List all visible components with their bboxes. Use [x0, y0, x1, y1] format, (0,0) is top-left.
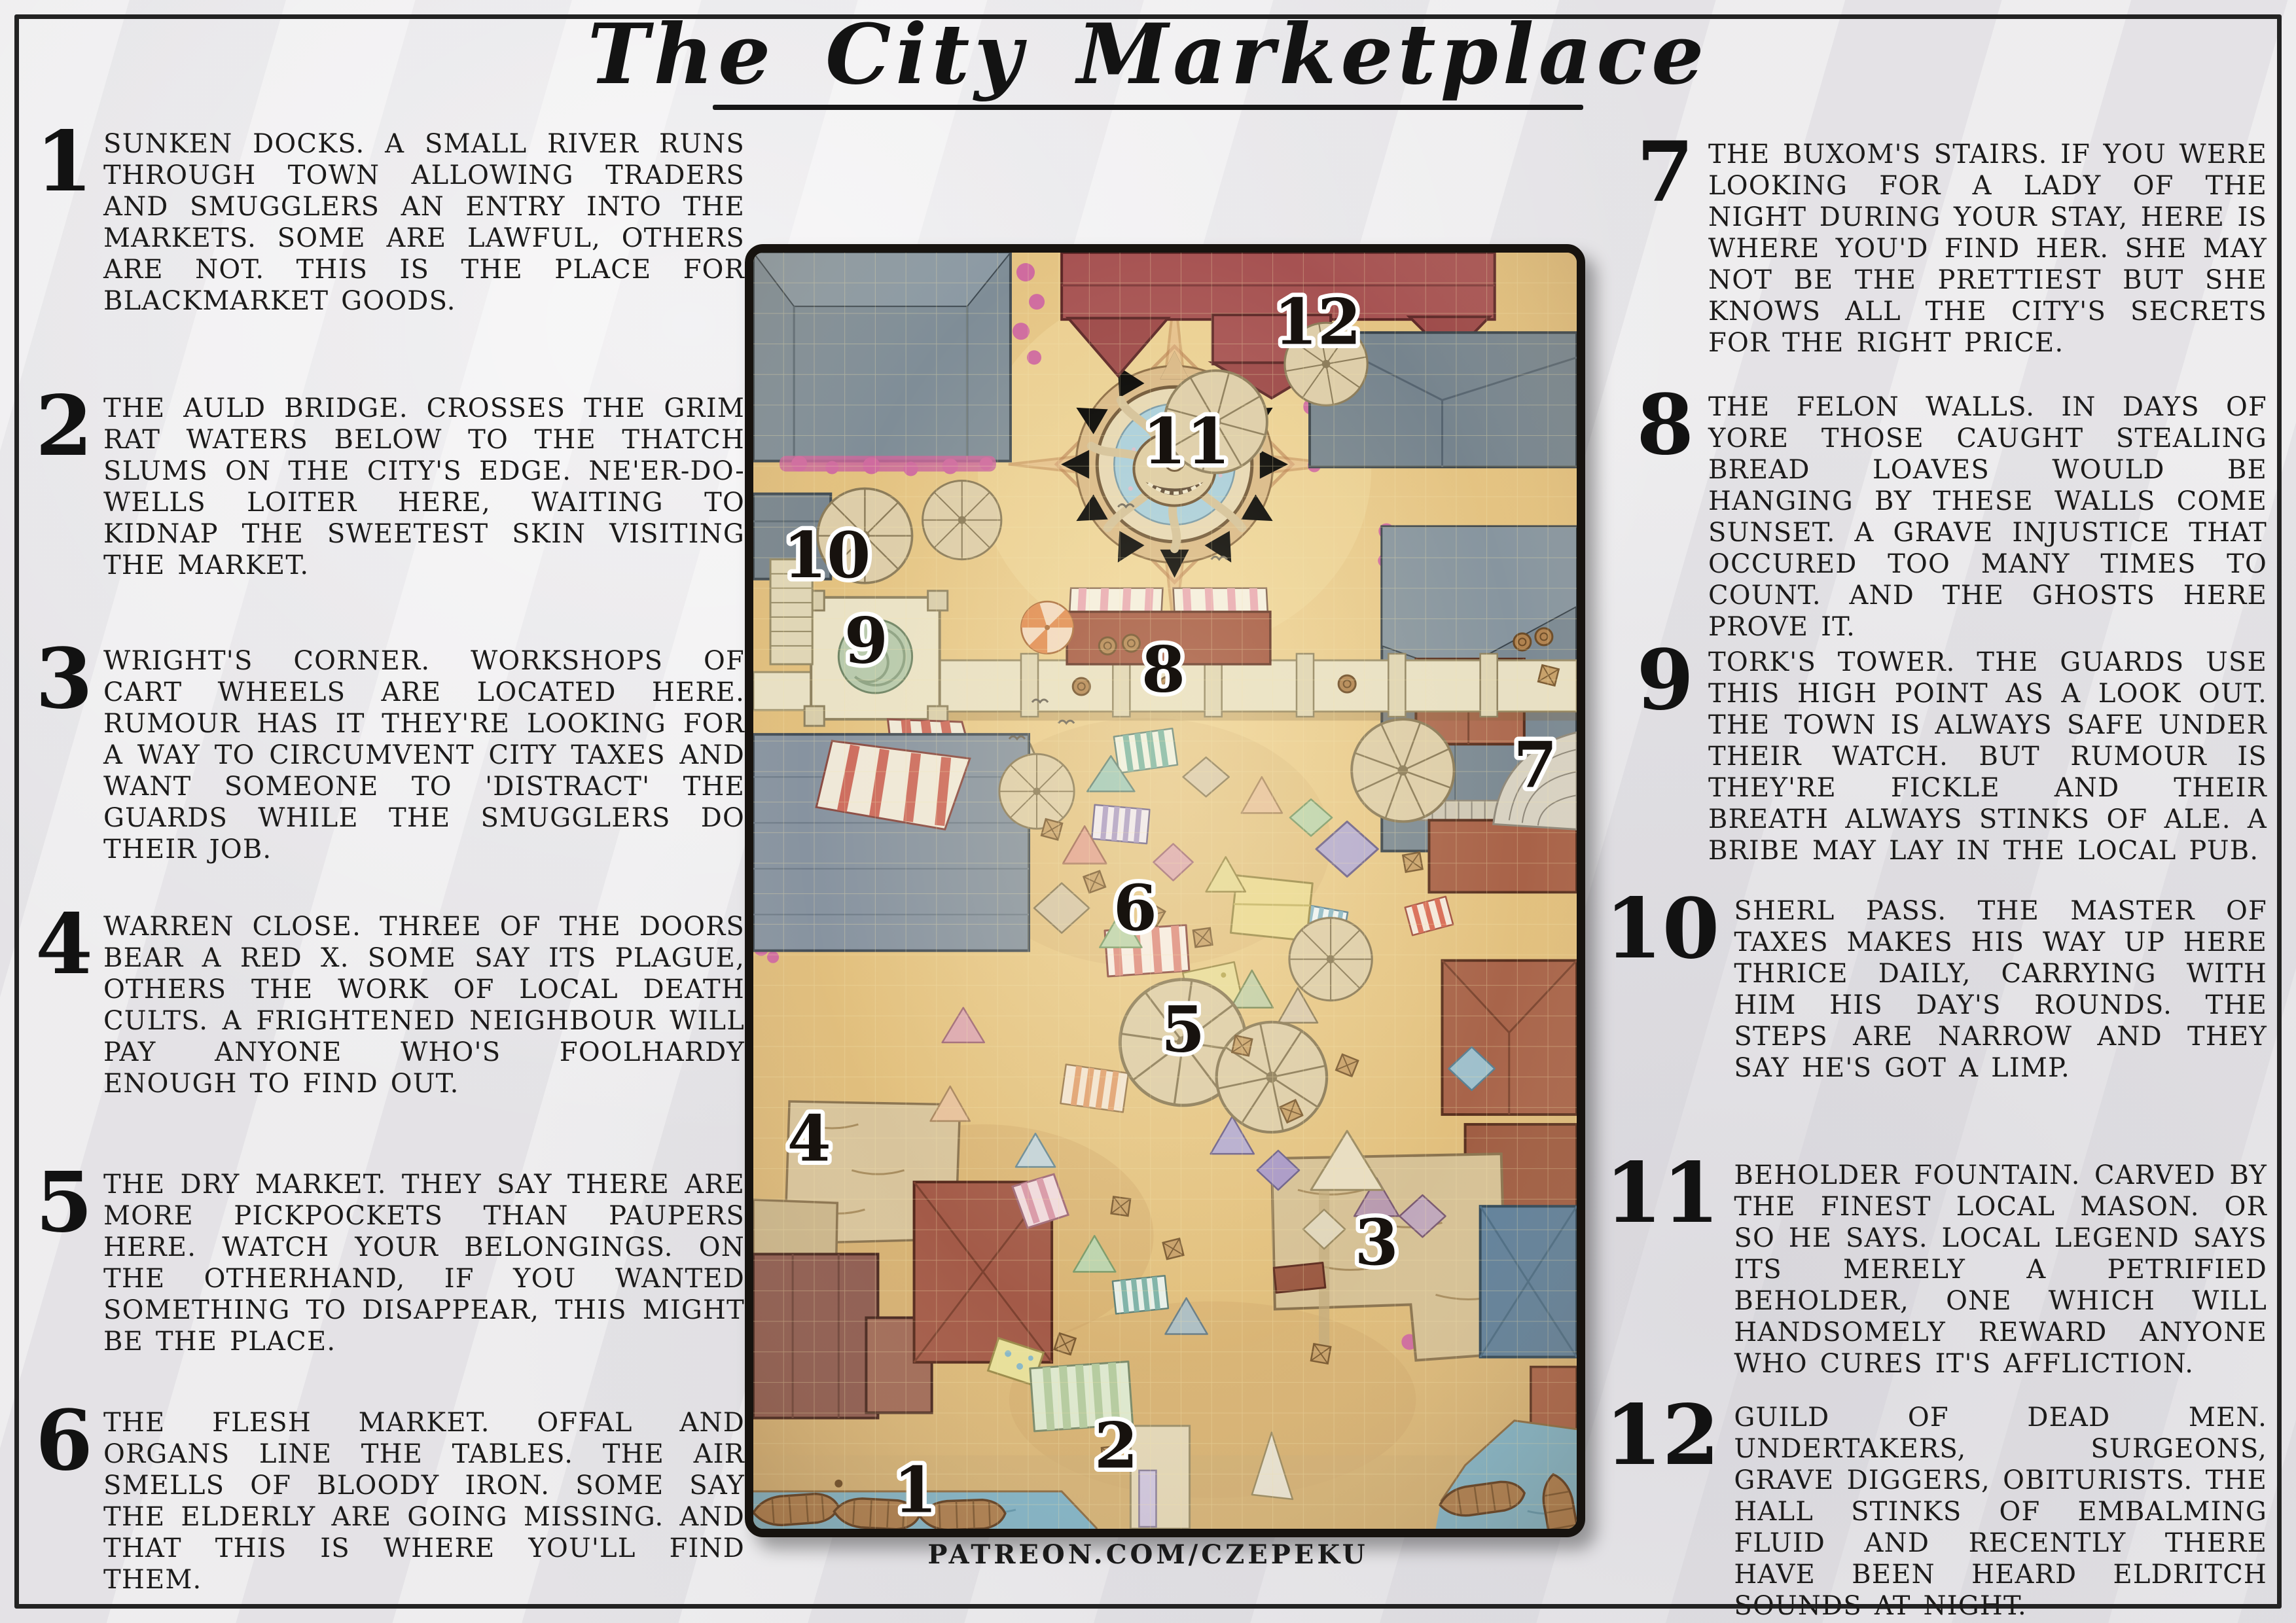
legend-item: 7 THE BUXOM'S STAIRS. IF YOU WERE LOOKIN… — [1605, 139, 2267, 359]
legend-item-number: 1 — [25, 128, 103, 195]
marketplace-map[interactable]: 123456789101112 — [745, 244, 1585, 1537]
legend-item: 8 THE FELON WALLS. IN DAYS OF YORE THOSE… — [1605, 391, 2267, 643]
legend-item: 3 WRIGHT'S CORNER. WORKSHOPS OF CART WHE… — [25, 645, 745, 865]
legend-item-number: 3 — [25, 645, 103, 712]
legend-column-right: 7 THE BUXOM'S STAIRS. IF YOU WERE LOOKIN… — [1605, 0, 2267, 1623]
map-label-7: 7 — [1513, 728, 1557, 802]
legend-item-number: 5 — [25, 1169, 103, 1236]
map-label-5: 5 — [1161, 992, 1205, 1066]
legend-item-number: 2 — [25, 393, 103, 459]
map-label-1: 1 — [893, 1453, 937, 1527]
legend-item-number: 10 — [1605, 895, 1734, 962]
patreon-credit: PATREON.COM/CZEPEKU — [0, 1539, 2296, 1570]
legend-item-text: BEHOLDER FOUNTAIN. CARVED BY THE FINEST … — [1734, 1160, 2267, 1380]
legend-item-text: TORK'S TOWER. THE GUARDS USE THIS HIGH P… — [1708, 647, 2267, 866]
legend-item-text: GUILD OF DEAD MEN. UNDERTAKERS, SURGEONS… — [1734, 1402, 2267, 1622]
legend-item-number: 7 — [1605, 139, 1708, 205]
map-label-9: 9 — [844, 603, 888, 677]
map-label-8: 8 — [1141, 633, 1185, 707]
legend-item-text: WRIGHT'S CORNER. WORKSHOPS OF CART WHEEL… — [103, 645, 745, 865]
legend-item: 10 SHERL PASS. THE MASTER OF TAXES MAKES… — [1605, 895, 2267, 1084]
legend-item-number: 12 — [1605, 1402, 1734, 1469]
legend-item-text: THE FELON WALLS. IN DAYS OF YORE THOSE C… — [1708, 391, 2267, 643]
legend-item-number: 4 — [25, 911, 103, 978]
legend-item-number: 11 — [1605, 1160, 1734, 1226]
marketplace-handout-page: { "page": { "title": "The City Marketpla… — [0, 0, 2296, 1623]
legend-item: 1 SUNKEN DOCKS. A SMALL RIVER RUNS THROU… — [25, 128, 745, 317]
legend-item: 4 WARREN CLOSE. THREE OF THE DOORS BEAR … — [25, 911, 745, 1099]
map-label-12: 12 — [1274, 285, 1361, 359]
map-label-3: 3 — [1355, 1205, 1399, 1279]
map-label-2: 2 — [1094, 1408, 1138, 1482]
legend-column-left: 1 SUNKEN DOCKS. A SMALL RIVER RUNS THROU… — [25, 0, 745, 1623]
legend-item-number: 9 — [1605, 647, 1708, 713]
legend-item-number: 8 — [1605, 391, 1708, 458]
map-label-11: 11 — [1143, 404, 1230, 478]
legend-item: 2 THE AULD BRIDGE. CROSSES THE GRIM RAT … — [25, 393, 745, 581]
legend-item: 12 GUILD OF DEAD MEN. UNDERTAKERS, SURGE… — [1605, 1402, 2267, 1622]
legend-item-text: THE BUXOM'S STAIRS. IF YOU WERE LOOKING … — [1708, 139, 2267, 359]
legend-item-text: SUNKEN DOCKS. A SMALL RIVER RUNS THROUGH… — [103, 128, 745, 317]
legend-item-text: SHERL PASS. THE MASTER OF TAXES MAKES HI… — [1734, 895, 2267, 1084]
legend-item-text: WARREN CLOSE. THREE OF THE DOORS BEAR A … — [103, 911, 745, 1099]
map-label-10: 10 — [783, 518, 870, 592]
title-underline — [713, 105, 1583, 110]
map-label-4: 4 — [787, 1102, 831, 1176]
legend-item: 5 THE DRY MARKET. THEY SAY THERE ARE MOR… — [25, 1169, 745, 1357]
legend-item-number: 6 — [25, 1407, 103, 1474]
legend-item: 11 BEHOLDER FOUNTAIN. CARVED BY THE FINE… — [1605, 1160, 2267, 1380]
legend-item: 9 TORK'S TOWER. THE GUARDS USE THIS HIGH… — [1605, 647, 2267, 866]
legend-item-text: THE AULD BRIDGE. CROSSES THE GRIM RAT WA… — [103, 393, 745, 581]
legend-item-text: THE DRY MARKET. THEY SAY THERE ARE MORE … — [103, 1169, 745, 1357]
map-label-6: 6 — [1113, 871, 1157, 945]
map-illustration: 123456789101112 — [753, 253, 1577, 1529]
